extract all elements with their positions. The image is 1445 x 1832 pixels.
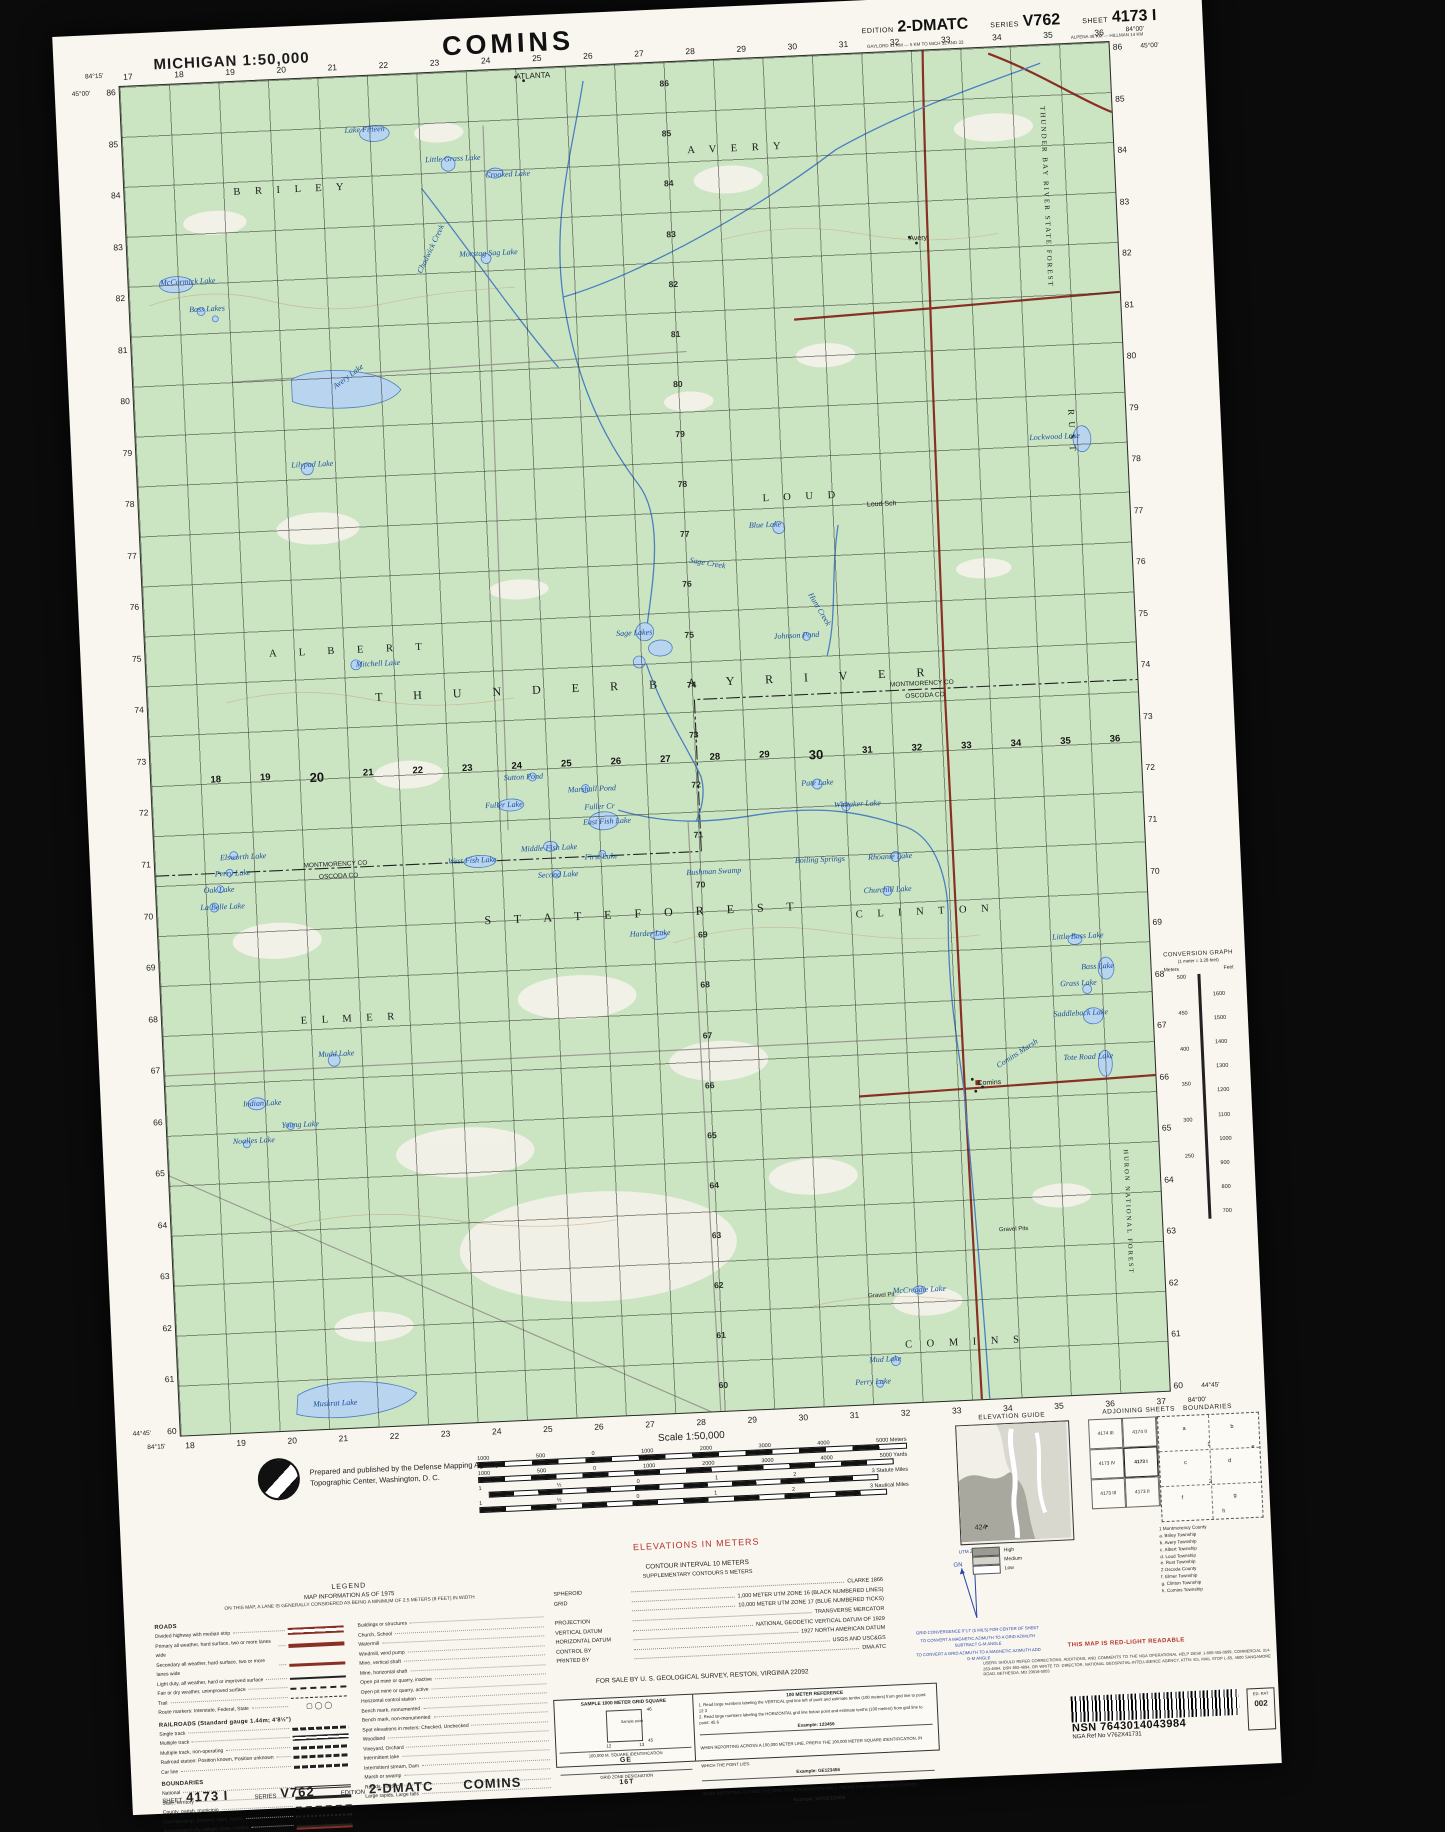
map-label: Sage Lakes <box>616 628 653 639</box>
map-label: Bass Lakes <box>189 304 225 315</box>
scale-tick: 2000 <box>702 1460 715 1467</box>
grid-number: 28 <box>685 46 695 56</box>
map-label: Mudd Lake <box>318 1048 355 1059</box>
grid-number: 75 <box>132 653 142 663</box>
tick-label: 1500 <box>1214 1014 1240 1021</box>
grid-number: 76 <box>129 602 139 612</box>
scale-tick: 500 <box>536 1453 545 1459</box>
grid-number: 62 <box>1169 1277 1187 1288</box>
legend-symbol-icon <box>288 1641 344 1648</box>
grid-number: 30 <box>787 41 797 51</box>
grid-number: 79 <box>122 448 132 458</box>
scale-tick: ½ <box>557 1482 562 1488</box>
corner-latitude: 44°45' <box>133 1430 152 1438</box>
map-label: R U S T <box>1066 408 1078 452</box>
scale-tick: 3 Statute Miles <box>872 1467 909 1475</box>
boundary-letter: h <box>1222 1508 1225 1514</box>
grid-number: 86 <box>106 87 116 97</box>
boundary-letter: 1 <box>1207 1442 1210 1448</box>
feet-ticks: 1600150014001300120011001000900800700 <box>1213 990 1249 1214</box>
map-label: Indian Lake <box>243 1097 282 1108</box>
grid-number: 66 <box>153 1117 163 1127</box>
for-sale-note: FOR SALE BY U. S. GEOLOGICAL SURVEY, RES… <box>507 1664 897 1689</box>
map-label: Little Bass Lake <box>1052 930 1104 941</box>
map-label: Lilypad Lake <box>291 458 333 469</box>
scale-tick: 3000 <box>761 1458 774 1465</box>
grid-number: 69 <box>1152 916 1170 927</box>
nsn-block: NSN 7643014043984 NGA Ref No V762X41731 … <box>1071 1687 1277 1740</box>
grid-reference-box: SAMPLE 1000 METER GRID SQUARE 46 45 12 1… <box>553 1683 940 1768</box>
grid-number: 82 <box>1122 247 1140 258</box>
conversion-scale-bar <box>1197 974 1211 1219</box>
grid-number: 69 <box>146 962 156 972</box>
topo-map: 1718192021222324252627282930313233343536… <box>119 41 1171 1437</box>
map-label: THUNDER BAY RIVER STATE FOREST <box>1038 106 1054 288</box>
sheet-number: SHEET4173 I <box>1082 7 1157 28</box>
grid-number: 68 <box>148 1014 158 1024</box>
legend-symbol-icon <box>294 1763 350 1769</box>
map-sheet: MICHIGAN 1:50,000 COMINS EDITION2-DMATC … <box>52 0 1282 1815</box>
scale-tick: 1000 <box>643 1463 656 1470</box>
grid-number: 80 <box>120 396 130 406</box>
grid-number: 60 <box>1173 1380 1191 1391</box>
map-label: Marshall Pond <box>568 783 617 794</box>
boundaries-panel: BOUNDARIES abcde12fgh 1 Montmorency Coun… <box>1153 1402 1269 1596</box>
scale-tick: 0 <box>593 1466 596 1472</box>
tick-label: 350 <box>1165 1082 1191 1089</box>
grid-number: 64 <box>158 1220 168 1230</box>
map-label: La Belle Lake <box>200 902 245 913</box>
boundary-letter: f <box>1182 1495 1184 1501</box>
scale-bars: Scale 1:50,000 1000500010002000300040005… <box>476 1422 909 1516</box>
map-label: Avery <box>909 234 927 242</box>
legend-symbol-icon <box>292 1725 348 1731</box>
boundary-letter: a <box>1182 1426 1185 1432</box>
map-label: Morstag Sag Lake <box>459 247 518 259</box>
tick-label: 250 <box>1168 1153 1194 1160</box>
grid-number: 63 <box>1166 1225 1184 1236</box>
map-label: S T A T E F O R E S T <box>484 899 804 928</box>
map-label: Little Grass Lake <box>425 153 481 165</box>
scale-tick: 4000 <box>820 1455 833 1462</box>
grid-number: 84 <box>1117 144 1135 155</box>
map-label: L O U D <box>762 489 841 504</box>
grid-number: 70 <box>144 911 154 921</box>
grid-number: 36 <box>1094 27 1104 37</box>
scale-tick: 1000 <box>477 1456 490 1463</box>
boundaries-diagram: abcde12fgh <box>1157 1412 1264 1523</box>
grid-number: 85 <box>108 139 118 149</box>
map-label: Lake Fifteen <box>344 124 385 135</box>
map-label: Fuller Lake <box>485 800 523 811</box>
legend-symbol-icon <box>293 1754 349 1760</box>
tick-label: 800 <box>1221 1183 1247 1190</box>
map-label: McCreadie Lake <box>892 1283 946 1294</box>
map-label: Churchill Lake <box>863 883 911 894</box>
boundary-letter: g <box>1233 1493 1236 1499</box>
datum-info: SPHEROIDCLARKE 1866GRID1,000 METER UTM Z… <box>553 1576 886 1668</box>
map-label: Rhoanie Lake <box>868 851 913 862</box>
grid-number: 22 <box>378 60 388 70</box>
map-label: East Fish Lake <box>583 815 631 826</box>
grid-number: 31 <box>839 39 849 49</box>
elevations-note: ELEVATIONS IN METERS <box>521 1531 871 1557</box>
tick-label: 1000 <box>1219 1135 1245 1142</box>
legend-symbol-icon: ▢ ◯ ◯ <box>291 1704 347 1710</box>
grid-number: 75 <box>1138 607 1156 618</box>
square-identification: GE <box>560 1754 692 1767</box>
legend-symbol-icon <box>293 1744 349 1750</box>
map-label: Bushman Swamp <box>686 866 741 877</box>
map-label: OSCODA CO <box>905 691 945 700</box>
grid-number: 20 <box>276 64 286 74</box>
map-label: Middle Fish Lake <box>521 842 578 854</box>
grid-number: 83 <box>1120 196 1138 207</box>
scale-tick: 0 <box>637 1479 640 1485</box>
elevation-guide-map: 424 <box>956 1421 1071 1542</box>
grid-number: 29 <box>736 44 746 54</box>
legend-symbol-icon <box>290 1676 346 1681</box>
map-label: Whitaker Lake <box>834 798 881 809</box>
grid-number: 79 <box>1129 401 1147 412</box>
map-label: Gravel Pit <box>868 1292 895 1299</box>
map-label: Grass Lake <box>1060 978 1097 989</box>
scale-tick: ½ <box>557 1497 562 1503</box>
scale-tick: 3000 <box>758 1443 771 1450</box>
legend-symbol-icon <box>296 1804 352 1809</box>
legend-symbol-icon <box>297 1823 353 1827</box>
map-label: Sutton Pond <box>504 772 544 783</box>
map-label: HURON NATIONAL FOREST <box>1122 1149 1135 1274</box>
grid-number: 61 <box>1171 1328 1189 1339</box>
edition-rating-box: ED. RAT002 <box>1246 1687 1276 1730</box>
adjoining-sheet-cell: 4174 III <box>1088 1418 1123 1450</box>
grid-number: 63 <box>160 1271 170 1281</box>
corner-latitude: 45°00' <box>1140 42 1159 50</box>
map-label: Bass Lake <box>1081 961 1114 971</box>
map-label: C O M I N S <box>905 1334 1025 1350</box>
corner-longitude: 84°00' <box>1126 25 1145 33</box>
grid-number: 17 <box>123 71 133 81</box>
tick-label: 1400 <box>1215 1038 1241 1045</box>
map-label: Young Lake <box>281 1119 319 1130</box>
grid-number: 74 <box>134 705 144 715</box>
grid-number: 76 <box>1136 556 1154 567</box>
map-label: Tote Road Lake <box>1063 1051 1113 1062</box>
sample-grid-square: 46 45 12 13 Sample point <box>606 1709 643 1743</box>
map-label: Crooked Lake <box>485 168 530 179</box>
scale-tick: 5000 Yards <box>880 1452 908 1459</box>
scale-tick: 1000 <box>641 1448 654 1455</box>
grid-number: 35 <box>1043 30 1053 40</box>
grid-number: 77 <box>1134 504 1152 515</box>
map-label: Johnson Pond <box>774 630 820 641</box>
elevation-swatch <box>973 1565 1001 1575</box>
scale-tick: 2 <box>793 1472 796 1478</box>
adjoining-sheet-cell: 4173 II <box>1125 1476 1160 1508</box>
grid-number: 80 <box>1127 350 1145 361</box>
grid-number: 84 <box>111 190 121 200</box>
scale-tick: 2 <box>792 1487 795 1493</box>
grid-number: 60 <box>167 1426 177 1436</box>
dma-logo-icon <box>257 1457 301 1501</box>
tick-label: 500 <box>1160 975 1186 982</box>
map-label: Saddleback Lake <box>1053 1007 1108 1018</box>
grid-number: 72 <box>1145 762 1163 773</box>
feet-header: Feet <box>1223 964 1233 970</box>
map-label: Boiling Springs <box>795 854 845 865</box>
map-label: Blue Lake <box>749 519 782 529</box>
grid-number: 33 <box>941 34 951 44</box>
corner-longitude: 84°15' <box>85 73 104 81</box>
scale-tick: 0 <box>591 1451 594 1457</box>
map-label: West Fish Lake <box>448 855 497 866</box>
meters-header: Meters <box>1164 967 1180 974</box>
tick-label: 300 <box>1166 1118 1192 1125</box>
scale-tick: 1 <box>479 1501 482 1507</box>
grid-number: 65 <box>155 1168 165 1178</box>
map-label: Muskrat Lake <box>313 1398 358 1409</box>
map-label: Loud Sch <box>867 500 897 508</box>
tick-label: 900 <box>1220 1159 1246 1166</box>
legend-symbol-icon <box>290 1685 346 1690</box>
scale-tick: 1000 <box>478 1471 491 1478</box>
scale-tick: 0 <box>636 1494 639 1500</box>
map-label: Elsworth Lake <box>220 851 267 862</box>
grid-number: 78 <box>125 499 135 509</box>
map-label: A L B E R T <box>269 642 432 660</box>
scale-tick: 3 Nautical Miles <box>870 1482 909 1490</box>
grid-number: 70 <box>1150 865 1168 876</box>
footer-series: SERIESV762 <box>254 1783 315 1804</box>
scale-tick: 500 <box>537 1468 546 1474</box>
scale-tick: 4000 <box>817 1440 830 1447</box>
map-label: Avery Lake <box>331 362 365 391</box>
grid-number: 82 <box>115 293 125 303</box>
grid-number: 23 <box>430 57 440 67</box>
map-labels: ATLANTAB R I L E YA V E R YLake FifteenL… <box>120 42 1170 1436</box>
map-label: Hunt Creek <box>807 591 833 627</box>
tick-label: 1300 <box>1216 1062 1242 1069</box>
map-label: Chadwick Creek <box>415 223 446 275</box>
grid-number: 24 <box>481 55 491 65</box>
map-label: E L M E R <box>300 1011 400 1027</box>
map-label: B R I L E Y <box>233 182 350 198</box>
map-label: Fuller Cr <box>584 801 615 811</box>
map-label: Mud Lake <box>869 1354 902 1364</box>
grid-number: 77 <box>127 550 137 560</box>
tick-label: 1600 <box>1213 990 1239 997</box>
grid-number: 73 <box>1143 710 1161 721</box>
map-label: First Lake <box>584 851 617 861</box>
grid-number: 74 <box>1141 659 1159 670</box>
grid-number: 86 <box>1113 41 1131 52</box>
legend-symbol-icon <box>296 1813 352 1818</box>
scale-tick: 2000 <box>700 1446 713 1453</box>
legend-symbol-icon <box>293 1734 349 1742</box>
adjoining-sheet-cell: 4173 IV <box>1089 1448 1124 1480</box>
scale-tick: 1 <box>478 1486 481 1492</box>
map-label: Gravel Pits <box>999 1226 1029 1233</box>
boundary-letter: e <box>1251 1444 1254 1450</box>
legend-symbol-icon <box>289 1661 345 1667</box>
map-marginalia: Prepared and published by the Defense Ma… <box>116 1395 1282 1815</box>
grid-number: 72 <box>139 808 149 818</box>
footer-sheet: SHEET4173 I <box>162 1787 229 1808</box>
map-label: Pate Lake <box>801 778 834 788</box>
map-label: A V E R Y <box>687 140 787 155</box>
grid-number: 71 <box>1148 813 1166 824</box>
meters-ticks: 500450400350300250 <box>1160 975 1194 1161</box>
map-label: ATLANTA <box>515 70 550 81</box>
map-label: Oak Lake <box>203 885 234 895</box>
map-label: Comins <box>977 1079 1001 1087</box>
boundary-letter: d <box>1228 1458 1231 1464</box>
map-label: Mitchell Lake <box>356 658 401 669</box>
map-label: MONTMORENCY CO <box>303 860 367 870</box>
adjoining-sheet-cell: 4173 I <box>1123 1446 1158 1478</box>
conversion-graph: CONVERSION GRAPH (1 meter = 3.28 feet) M… <box>1155 949 1253 1221</box>
scan-background: MICHIGAN 1:50,000 COMINS EDITION2-DMATC … <box>0 0 1445 1832</box>
map-label: Second Lake <box>538 869 579 880</box>
nga-ref-number: V762X41731 <box>1107 1731 1142 1739</box>
map-label: Comins Marsh <box>994 1037 1039 1070</box>
grid-number: 21 <box>327 62 337 72</box>
grid-number: 61 <box>165 1374 175 1384</box>
adjoining-sheet-cell: 4174 II <box>1122 1416 1157 1448</box>
grid-number: 34 <box>992 32 1002 42</box>
grid-number: 32 <box>890 37 900 47</box>
boundary-letter: b <box>1230 1424 1233 1430</box>
grid-number: 81 <box>1124 298 1142 309</box>
tick-label: 400 <box>1163 1046 1189 1053</box>
tick-label: 700 <box>1223 1207 1249 1214</box>
elevation-guide: ELEVATION GUIDE 424 HighMediumLow <box>952 1410 1079 1575</box>
scale-tick: 1 <box>714 1490 717 1496</box>
grid-number: 73 <box>136 756 146 766</box>
footer-title: COMINS <box>459 1774 522 1795</box>
map-label: MONTMORENCY CO <box>890 679 954 689</box>
grid-number: 85 <box>1115 93 1133 104</box>
legend-symbol-icon <box>291 1695 347 1699</box>
boundary-letter: 2 <box>1209 1479 1212 1485</box>
scale-tick: 1 <box>715 1475 718 1481</box>
grid-number: 78 <box>1131 453 1149 464</box>
map-label: C L I N T O N <box>856 903 995 920</box>
map-label: Noalles Lake <box>233 1135 275 1146</box>
map-label: Sage Creek <box>689 556 726 571</box>
grid-number: 19 <box>225 67 235 77</box>
map-label: Perry Lake <box>855 1376 891 1387</box>
map-label: McCormick Lake <box>160 276 216 288</box>
grid-number: 83 <box>113 242 123 252</box>
grid-number: 25 <box>532 53 542 63</box>
map-label: T H U N D E R B A Y R I V E R <box>375 665 939 706</box>
grid-number: 26 <box>583 51 593 61</box>
svg-text:424: 424 <box>975 1524 987 1532</box>
grid-number: 62 <box>162 1323 172 1333</box>
adjoining-sheet-cell: 4173 III <box>1091 1478 1126 1510</box>
corner-latitude: 45°00' <box>72 90 91 98</box>
map-label: Harder Lake <box>630 928 671 939</box>
tick-label: 1100 <box>1218 1111 1244 1118</box>
tick-label: 1200 <box>1217 1086 1243 1093</box>
grid-number: 67 <box>151 1065 161 1075</box>
map-label: Perry Lake <box>215 868 251 879</box>
tick-label: 450 <box>1162 1010 1188 1017</box>
grid-number: 81 <box>118 345 128 355</box>
corner-latitude: 44°45' <box>1201 1381 1220 1389</box>
map-label: OSCODA CO <box>319 872 359 881</box>
township-list: 1 Montmorency County a. Briley Township … <box>1159 1521 1270 1595</box>
grid-number: 71 <box>141 859 151 869</box>
grid-number: 27 <box>634 48 644 58</box>
grid-number: 18 <box>174 69 184 79</box>
boundary-letter: c <box>1184 1460 1187 1466</box>
